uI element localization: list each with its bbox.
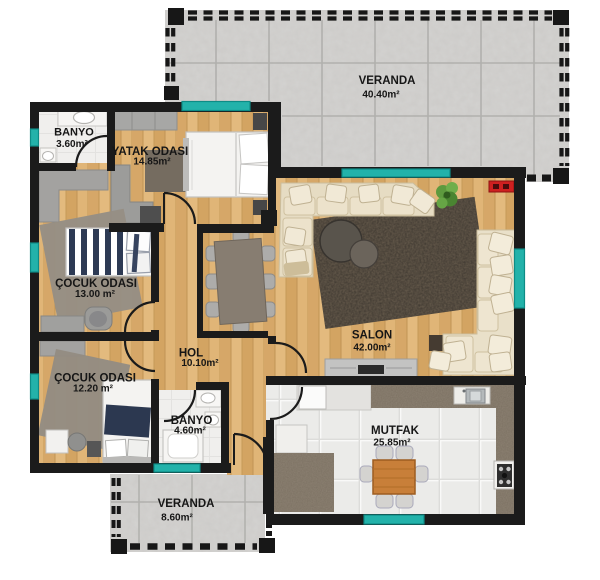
svg-text:4.60m²: 4.60m² xyxy=(174,426,206,437)
svg-text:MUTFAK: MUTFAK xyxy=(371,425,420,437)
svg-text:25.85m²: 25.85m² xyxy=(373,438,411,449)
svg-text:12.20 m²: 12.20 m² xyxy=(73,384,114,395)
svg-text:13.00 m²: 13.00 m² xyxy=(75,289,116,300)
svg-text:14.85m²: 14.85m² xyxy=(133,157,171,168)
svg-text:42.00m²: 42.00m² xyxy=(353,343,391,354)
svg-text:40.40m²: 40.40m² xyxy=(362,90,400,101)
svg-text:VERANDA: VERANDA xyxy=(158,498,215,510)
svg-text:VERANDA: VERANDA xyxy=(359,75,416,87)
svg-text:8.60m²: 8.60m² xyxy=(161,513,193,524)
svg-text:10.10m²: 10.10m² xyxy=(181,358,219,369)
svg-text:BANYO: BANYO xyxy=(54,127,94,139)
svg-text:3.60m²: 3.60m² xyxy=(56,139,88,150)
svg-text:SALON: SALON xyxy=(352,330,392,342)
